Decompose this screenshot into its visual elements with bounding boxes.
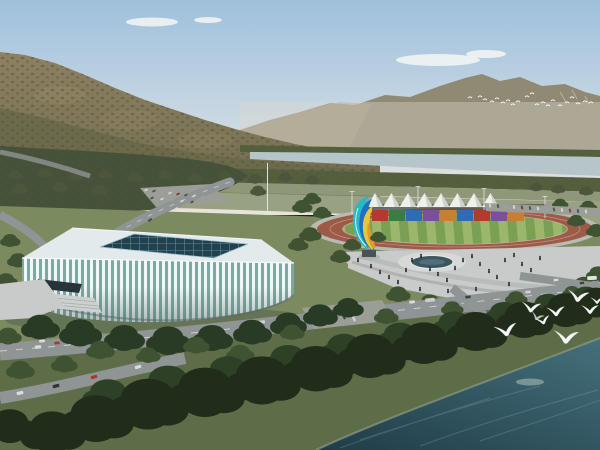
scene-canvas (0, 0, 600, 450)
car (54, 341, 60, 344)
container-block (406, 210, 422, 221)
pedestrian (471, 254, 473, 259)
car (409, 300, 415, 303)
pedestrian (530, 268, 532, 273)
pedestrian (521, 262, 523, 267)
pedestrian (447, 289, 449, 294)
pedestrian (462, 258, 464, 263)
pedestrian (479, 262, 481, 267)
cloud (126, 18, 178, 27)
bus (587, 276, 597, 280)
container-block (440, 210, 456, 221)
pedestrian (429, 267, 431, 272)
car (39, 339, 45, 342)
pedestrian (411, 258, 413, 263)
car (465, 295, 471, 298)
pedestrian (420, 254, 422, 259)
container-block (389, 210, 405, 221)
cloud (396, 54, 480, 66)
car (580, 282, 585, 285)
pedestrian (357, 258, 359, 263)
container-block (457, 210, 473, 221)
container-block (474, 210, 490, 221)
pedestrian (370, 264, 372, 269)
pedestrian (379, 270, 381, 275)
pedestrian (475, 287, 477, 292)
pedestrian (405, 268, 407, 273)
car (525, 290, 531, 293)
aerial-stadium-rendering (0, 0, 600, 450)
pedestrian (437, 272, 439, 277)
container-block (423, 210, 439, 221)
pedestrian (496, 275, 498, 280)
pedestrian (513, 253, 515, 258)
cloud (466, 50, 506, 58)
pedestrian (454, 266, 456, 271)
car (553, 279, 558, 282)
pedestrian (388, 275, 390, 280)
pedestrian (508, 282, 510, 287)
water-light-patch (516, 379, 544, 386)
pedestrian (504, 258, 506, 263)
container-block (372, 210, 388, 221)
pedestrian (539, 256, 541, 261)
pedestrian (419, 287, 421, 292)
car (35, 345, 42, 349)
cloud (194, 17, 222, 23)
pedestrian (397, 280, 399, 285)
pool-reflection (419, 259, 445, 265)
pedestrian (446, 278, 448, 283)
pedestrian (488, 269, 490, 274)
